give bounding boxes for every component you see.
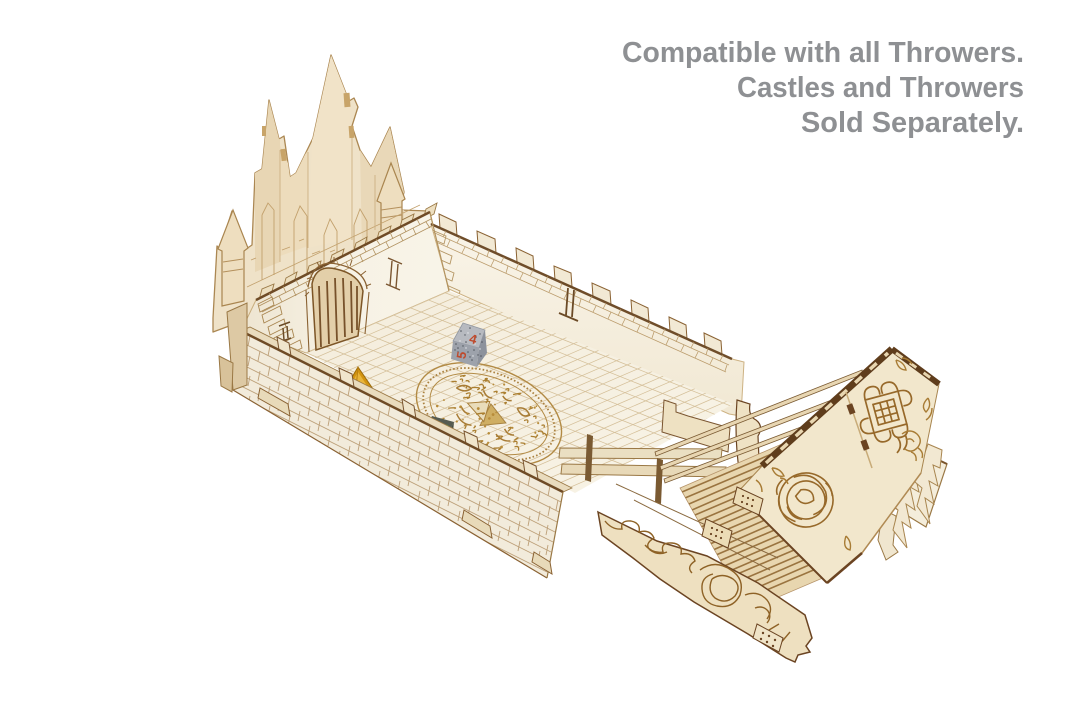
svg-text:Compatible with all Throwers.: Compatible with all Throwers. — [622, 37, 1024, 69]
svg-text:Castles and Throwers: Castles and Throwers — [737, 72, 1024, 104]
svg-text:Sold Separately.: Sold Separately. — [801, 107, 1024, 139]
